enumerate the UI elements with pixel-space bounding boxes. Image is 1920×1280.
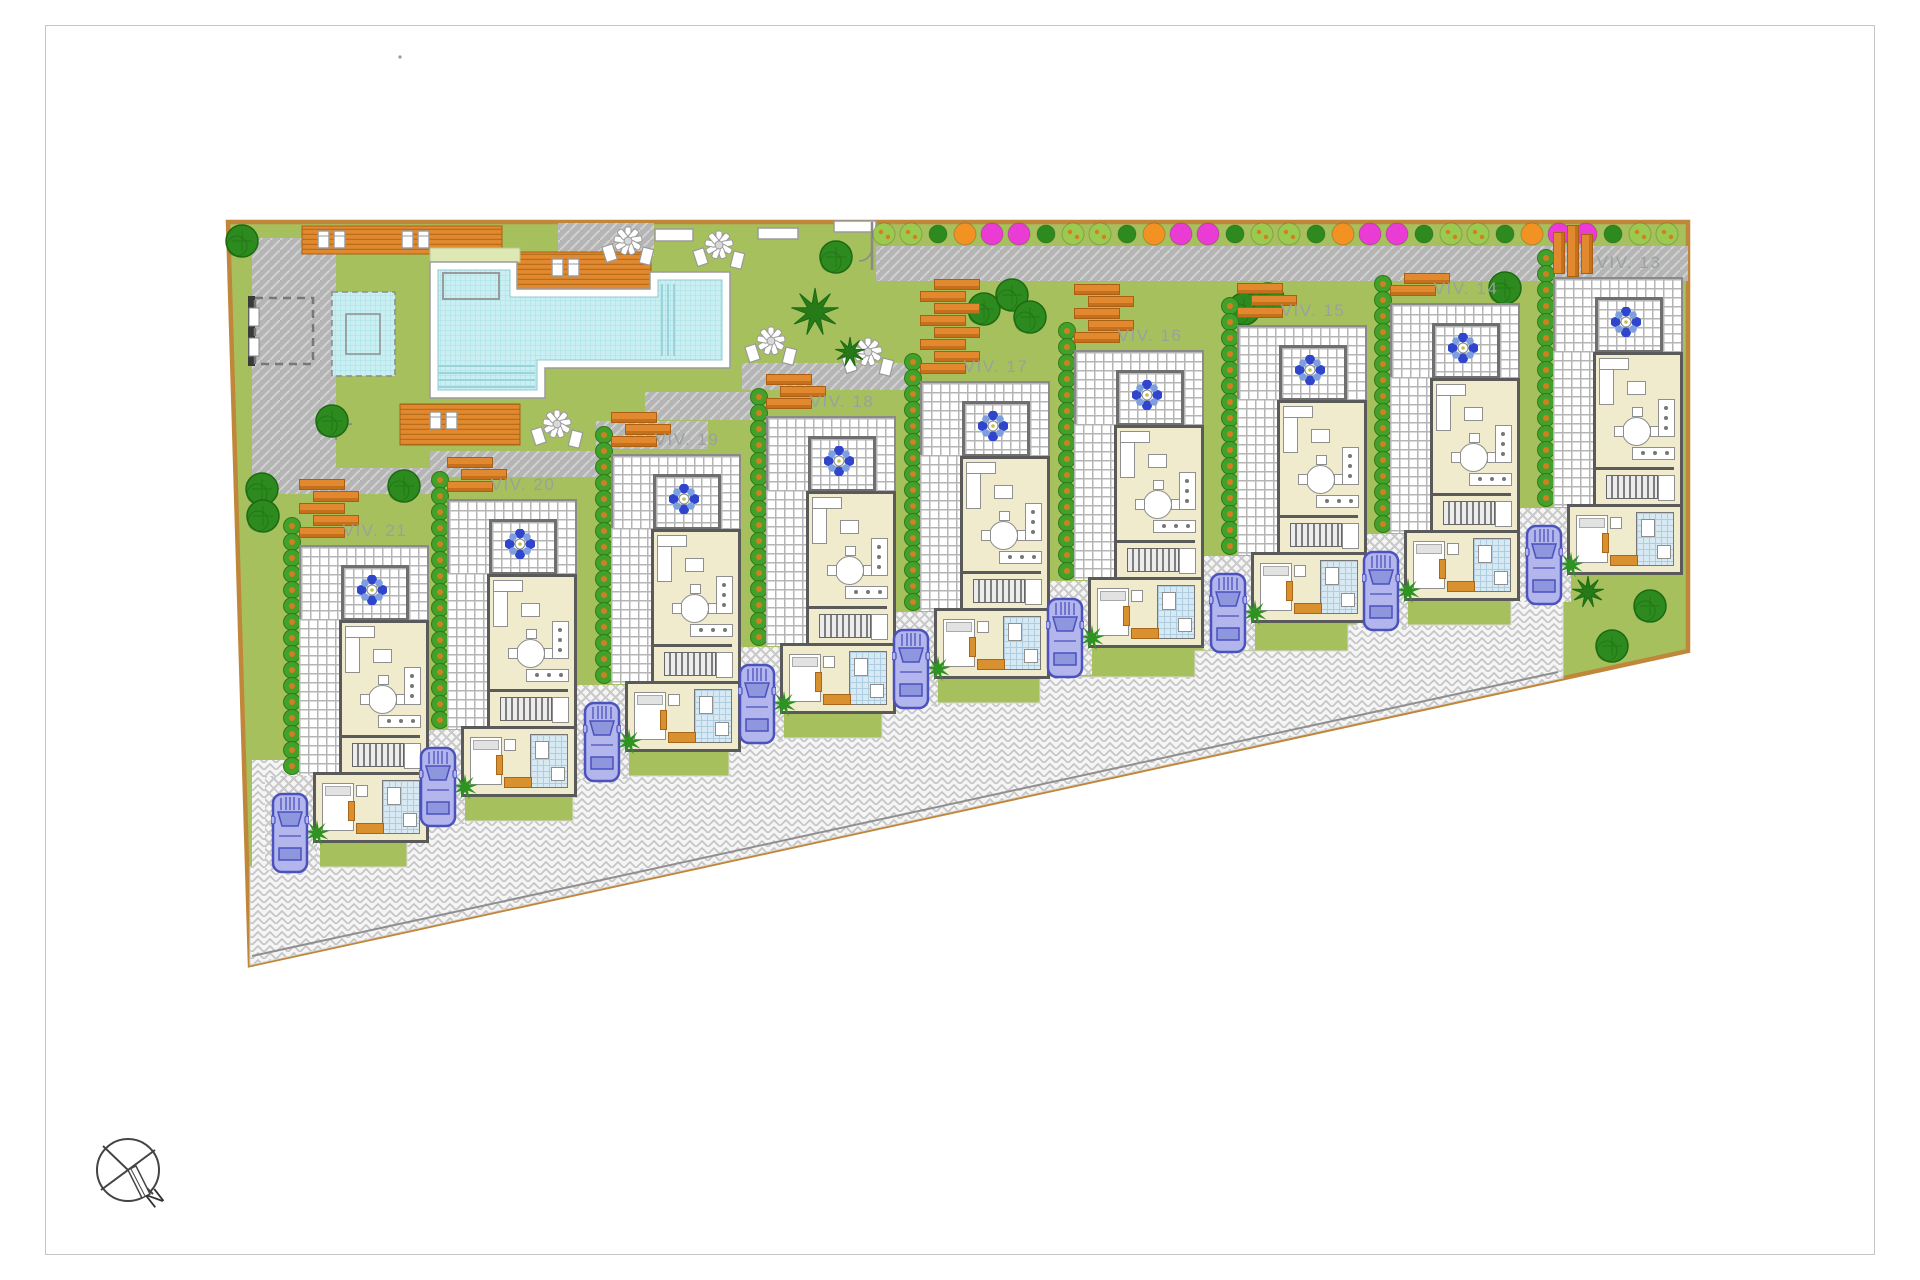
- house: [1593, 352, 1683, 510]
- interior-wall: [1433, 493, 1511, 496]
- chair: [1469, 433, 1480, 443]
- staircase: [973, 579, 1025, 603]
- dining-table: [368, 685, 397, 714]
- appliance: [410, 694, 414, 698]
- chair: [1135, 499, 1145, 510]
- appliance: [1501, 452, 1505, 456]
- kitchen-island: [999, 551, 1042, 564]
- door-leaf: [1439, 559, 1446, 579]
- pillow: [473, 740, 499, 750]
- chair: [378, 675, 389, 685]
- tv-cabinet: [994, 485, 1013, 499]
- sofa-corner: [1283, 406, 1313, 418]
- sofa: [812, 504, 827, 544]
- parked-car: [583, 701, 621, 788]
- nightstand: [823, 656, 835, 668]
- kitchen-counter: [552, 621, 569, 659]
- nightstand: [1610, 517, 1622, 529]
- sofa: [1436, 391, 1451, 431]
- staircase: [352, 743, 404, 767]
- pergola-plank: [920, 291, 966, 302]
- sink: [403, 813, 417, 827]
- door-leaf: [1123, 606, 1130, 626]
- appliance: [1653, 451, 1657, 455]
- bathroom: [382, 780, 420, 834]
- villa-label: VIV. 20: [491, 475, 556, 495]
- dining-table: [1459, 443, 1488, 472]
- kitchen-island: [1469, 473, 1512, 486]
- house: [1277, 400, 1367, 558]
- pergola-plank: [920, 363, 966, 374]
- chair: [690, 584, 701, 594]
- sink: [715, 722, 729, 736]
- parked-car: [419, 746, 457, 833]
- closet: [1495, 501, 1512, 527]
- sofa: [345, 633, 360, 673]
- appliance: [1501, 432, 1505, 436]
- appliance: [1665, 451, 1669, 455]
- appliance: [1186, 524, 1190, 528]
- sofa: [1120, 438, 1135, 478]
- appliance: [1349, 499, 1353, 503]
- nightstand: [356, 785, 368, 797]
- door-leaf: [815, 672, 822, 692]
- tv-cabinet: [840, 520, 859, 534]
- planter-ornament: [1295, 355, 1325, 390]
- wardrobe: [977, 659, 1005, 670]
- villa-label: VIV. 19: [655, 430, 720, 450]
- house-bedroom-wing: [1567, 504, 1683, 575]
- pergola-plank: [1074, 284, 1120, 295]
- sofa-corner: [345, 626, 375, 638]
- sofa-corner: [1120, 431, 1150, 443]
- interior-wall: [654, 644, 732, 647]
- kitchen-counter: [871, 538, 888, 576]
- closet: [871, 614, 888, 640]
- chair: [999, 511, 1010, 521]
- house: [487, 574, 577, 732]
- villa-plots: VIV. 13 VIV. 14 VIV. 15: [0, 0, 1920, 1280]
- parked-car: [1362, 550, 1400, 637]
- appliance: [1185, 489, 1189, 493]
- appliance: [1478, 477, 1482, 481]
- pergola-plank: [920, 339, 966, 350]
- pergola-plank: [611, 436, 657, 447]
- appliance: [1641, 451, 1645, 455]
- tv-cabinet: [685, 558, 704, 572]
- appliance: [1032, 555, 1036, 559]
- closet: [1025, 579, 1042, 605]
- pergola-plank: [1237, 283, 1283, 294]
- nightstand: [1294, 565, 1306, 577]
- pillow: [1579, 518, 1605, 528]
- appliance: [877, 555, 881, 559]
- tv-cabinet: [1464, 407, 1483, 421]
- appliance: [399, 719, 403, 723]
- nightstand: [668, 694, 680, 706]
- pillow: [1263, 566, 1289, 576]
- bathroom: [849, 651, 887, 705]
- kitchen-counter: [1658, 399, 1675, 437]
- toilet: [1641, 519, 1655, 537]
- kitchen-counter: [404, 667, 421, 705]
- sofa: [657, 542, 672, 582]
- chair: [526, 629, 537, 639]
- wardrobe: [1447, 581, 1475, 592]
- kitchen-counter: [1179, 472, 1196, 510]
- pergola-plank: [766, 374, 812, 385]
- villa-label: VIV. 16: [1118, 326, 1183, 346]
- staircase: [500, 697, 552, 721]
- closet: [1658, 475, 1675, 501]
- appliance: [1185, 479, 1189, 483]
- house-bedroom-wing: [1404, 530, 1520, 601]
- house-bedroom-wing: [1088, 577, 1204, 648]
- chair: [845, 546, 856, 556]
- house-bedroom-wing: [625, 681, 741, 752]
- villa-label: VIV. 18: [810, 392, 875, 412]
- appliance: [1325, 499, 1329, 503]
- appliance: [559, 673, 563, 677]
- staircase: [1290, 523, 1342, 547]
- bathroom: [530, 734, 568, 788]
- chair: [360, 694, 370, 705]
- appliance: [1348, 474, 1352, 478]
- pergola-plank: [299, 503, 345, 514]
- side-path: [920, 455, 962, 611]
- planter-ornament: [1448, 333, 1478, 368]
- appliance: [877, 545, 881, 549]
- kitchen-island: [1153, 520, 1196, 533]
- toilet: [387, 787, 401, 805]
- parked-car: [1525, 524, 1563, 611]
- appliance: [1664, 416, 1668, 420]
- appliance: [1185, 499, 1189, 503]
- interior-wall: [809, 606, 887, 609]
- kitchen-counter: [716, 576, 733, 614]
- nightstand: [1447, 543, 1459, 555]
- pergola-plank: [1237, 307, 1283, 318]
- appliance: [558, 638, 562, 642]
- chair: [1298, 474, 1308, 485]
- appliance: [1162, 524, 1166, 528]
- nightstand: [504, 739, 516, 751]
- pergola-plank: [447, 457, 493, 468]
- toilet: [699, 696, 713, 714]
- planter-ornament: [978, 411, 1008, 446]
- appliance: [387, 719, 391, 723]
- house-bedroom-wing: [934, 608, 1050, 679]
- sofa: [966, 469, 981, 509]
- door-leaf: [348, 801, 355, 821]
- appliance: [1348, 454, 1352, 458]
- pergola-plank: [299, 527, 345, 538]
- side-path: [299, 619, 341, 775]
- chair: [1451, 452, 1461, 463]
- chair: [827, 565, 837, 576]
- pergola-plank: [1581, 234, 1593, 274]
- house: [806, 491, 896, 649]
- pergola-plank: [313, 491, 359, 502]
- staircase: [1606, 475, 1658, 499]
- dining-table: [989, 521, 1018, 550]
- appliance: [1664, 406, 1668, 410]
- chair: [1316, 455, 1327, 465]
- wardrobe: [1131, 628, 1159, 639]
- chair: [1153, 480, 1164, 490]
- chair: [1632, 407, 1643, 417]
- closet: [552, 697, 569, 723]
- toilet: [1325, 567, 1339, 585]
- pillow: [1100, 591, 1126, 601]
- kitchen-island: [845, 586, 888, 599]
- house: [1114, 425, 1204, 583]
- interior-wall: [1596, 467, 1674, 470]
- parked-car: [1046, 597, 1084, 684]
- planter-ornament: [357, 575, 387, 610]
- house-bedroom-wing: [313, 772, 429, 843]
- interior-wall: [1280, 515, 1358, 518]
- dining-table: [1143, 490, 1172, 519]
- side-path: [1390, 377, 1432, 533]
- appliance: [1031, 520, 1035, 524]
- sink: [1024, 649, 1038, 663]
- parked-car: [1209, 572, 1247, 659]
- villa-label: VIV. 17: [964, 357, 1029, 377]
- bathroom: [1473, 538, 1511, 592]
- chair: [508, 648, 518, 659]
- tv-cabinet: [521, 603, 540, 617]
- villa-label: VIV. 14: [1434, 279, 1499, 299]
- sofa-corner: [812, 497, 842, 509]
- sink: [1657, 545, 1671, 559]
- appliance: [711, 628, 715, 632]
- side-path: [1074, 424, 1116, 580]
- chair: [1614, 426, 1624, 437]
- appliance: [1502, 477, 1506, 481]
- appliance: [699, 628, 703, 632]
- appliance: [547, 673, 551, 677]
- door-leaf: [660, 710, 667, 730]
- planter-ornament: [1611, 307, 1641, 342]
- pergola-plank: [1074, 308, 1120, 319]
- interior-wall: [963, 571, 1041, 574]
- appliance: [1348, 464, 1352, 468]
- villa-label: VIV. 21: [343, 521, 408, 541]
- appliance: [410, 674, 414, 678]
- pergola-plank: [1553, 232, 1565, 274]
- appliance: [1664, 426, 1668, 430]
- wardrobe: [504, 777, 532, 788]
- sink: [551, 767, 565, 781]
- pillow: [946, 622, 972, 632]
- side-path: [611, 528, 653, 684]
- sofa-corner: [493, 580, 523, 592]
- toilet: [1478, 545, 1492, 563]
- pergola-plank: [1074, 332, 1120, 343]
- chair: [672, 603, 682, 614]
- bathroom: [1636, 512, 1674, 566]
- villa-label: VIV. 13: [1597, 253, 1662, 273]
- pillow: [1416, 544, 1442, 554]
- chair: [981, 530, 991, 541]
- sink: [1341, 593, 1355, 607]
- appliance: [723, 628, 727, 632]
- appliance: [1031, 510, 1035, 514]
- pillow: [792, 657, 818, 667]
- kitchen-island: [690, 624, 733, 637]
- tv-cabinet: [1148, 454, 1167, 468]
- sofa-corner: [966, 462, 996, 474]
- wardrobe: [1294, 603, 1322, 614]
- wardrobe: [1610, 555, 1638, 566]
- pergola-plank: [1088, 296, 1134, 307]
- kitchen-island: [378, 715, 421, 728]
- kitchen-island: [1632, 447, 1675, 460]
- interior-wall: [490, 689, 568, 692]
- appliance: [866, 590, 870, 594]
- appliance: [1337, 499, 1341, 503]
- parked-car: [271, 792, 309, 879]
- house-bedroom-wing: [461, 726, 577, 797]
- kitchen-counter: [1025, 503, 1042, 541]
- staircase: [664, 652, 716, 676]
- sofa: [1283, 413, 1298, 453]
- appliance: [410, 684, 414, 688]
- nightstand: [1131, 590, 1143, 602]
- appliance: [878, 590, 882, 594]
- side-path: [447, 573, 489, 729]
- sink: [1178, 618, 1192, 632]
- pergola-plank: [447, 481, 493, 492]
- bathroom: [694, 689, 732, 743]
- house-bedroom-wing: [1251, 552, 1367, 623]
- toilet: [1008, 623, 1022, 641]
- appliance: [558, 628, 562, 632]
- house: [1430, 378, 1520, 536]
- appliance: [1020, 555, 1024, 559]
- sofa: [1599, 365, 1614, 405]
- staircase: [1127, 548, 1179, 572]
- house: [339, 620, 429, 778]
- staircase: [1443, 501, 1495, 525]
- tv-cabinet: [373, 649, 392, 663]
- dining-table: [1622, 417, 1651, 446]
- pillow: [637, 695, 663, 705]
- appliance: [1490, 477, 1494, 481]
- pergola-plank: [934, 303, 980, 314]
- planter-ornament: [824, 446, 854, 481]
- pergola-plank: [611, 412, 657, 423]
- door-leaf: [496, 755, 503, 775]
- sofa: [493, 587, 508, 627]
- pergola-plank: [934, 327, 980, 338]
- bathroom: [1157, 585, 1195, 639]
- nightstand: [977, 621, 989, 633]
- parked-car: [892, 628, 930, 715]
- wardrobe: [668, 732, 696, 743]
- side-path: [766, 490, 808, 646]
- sink: [870, 684, 884, 698]
- closet: [716, 652, 733, 678]
- staircase: [819, 614, 871, 638]
- kitchen-island: [1316, 495, 1359, 508]
- tv-cabinet: [1311, 429, 1330, 443]
- house-bedroom-wing: [780, 643, 896, 714]
- door-leaf: [1286, 581, 1293, 601]
- kitchen-counter: [1342, 447, 1359, 485]
- pergola-plank: [1567, 225, 1579, 277]
- appliance: [1031, 530, 1035, 534]
- appliance: [1174, 524, 1178, 528]
- door-leaf: [1602, 533, 1609, 553]
- closet: [1342, 523, 1359, 549]
- kitchen-counter: [1495, 425, 1512, 463]
- appliance: [411, 719, 415, 723]
- pergola-plank: [766, 398, 812, 409]
- appliance: [722, 583, 726, 587]
- toilet: [535, 741, 549, 759]
- dining-table: [1306, 465, 1335, 494]
- house: [960, 456, 1050, 614]
- side-path: [1237, 399, 1279, 555]
- dining-table: [680, 594, 709, 623]
- interior-wall: [342, 735, 420, 738]
- villa-label: VIV. 15: [1281, 301, 1346, 321]
- site-plan: N VIV. 13 VIV. 14 VIV. 15: [0, 0, 1920, 1280]
- closet: [1179, 548, 1196, 574]
- bathroom: [1003, 616, 1041, 670]
- planter-ornament: [669, 484, 699, 519]
- planter-ornament: [1132, 380, 1162, 415]
- kitchen-island: [526, 669, 569, 682]
- pergola-plank: [934, 279, 980, 290]
- toilet: [1162, 592, 1176, 610]
- pergola-plank: [920, 315, 966, 326]
- appliance: [1501, 442, 1505, 446]
- sofa-corner: [1436, 384, 1466, 396]
- sink: [1494, 571, 1508, 585]
- appliance: [558, 648, 562, 652]
- appliance: [854, 590, 858, 594]
- wardrobe: [356, 823, 384, 834]
- tv-cabinet: [1627, 381, 1646, 395]
- side-path: [1553, 351, 1595, 507]
- appliance: [722, 603, 726, 607]
- sofa-corner: [657, 535, 687, 547]
- interior-wall: [1117, 540, 1195, 543]
- pergola-plank: [1390, 285, 1436, 296]
- wardrobe: [823, 694, 851, 705]
- house: [651, 529, 741, 687]
- parked-car: [738, 663, 776, 750]
- appliance: [877, 565, 881, 569]
- dining-table: [516, 639, 545, 668]
- door-leaf: [969, 637, 976, 657]
- appliance: [1008, 555, 1012, 559]
- bathroom: [1320, 560, 1358, 614]
- toilet: [854, 658, 868, 676]
- pillow: [325, 786, 351, 796]
- appliance: [722, 593, 726, 597]
- pergola-plank: [299, 479, 345, 490]
- dining-table: [835, 556, 864, 585]
- planter-ornament: [505, 529, 535, 564]
- sofa-corner: [1599, 358, 1629, 370]
- appliance: [535, 673, 539, 677]
